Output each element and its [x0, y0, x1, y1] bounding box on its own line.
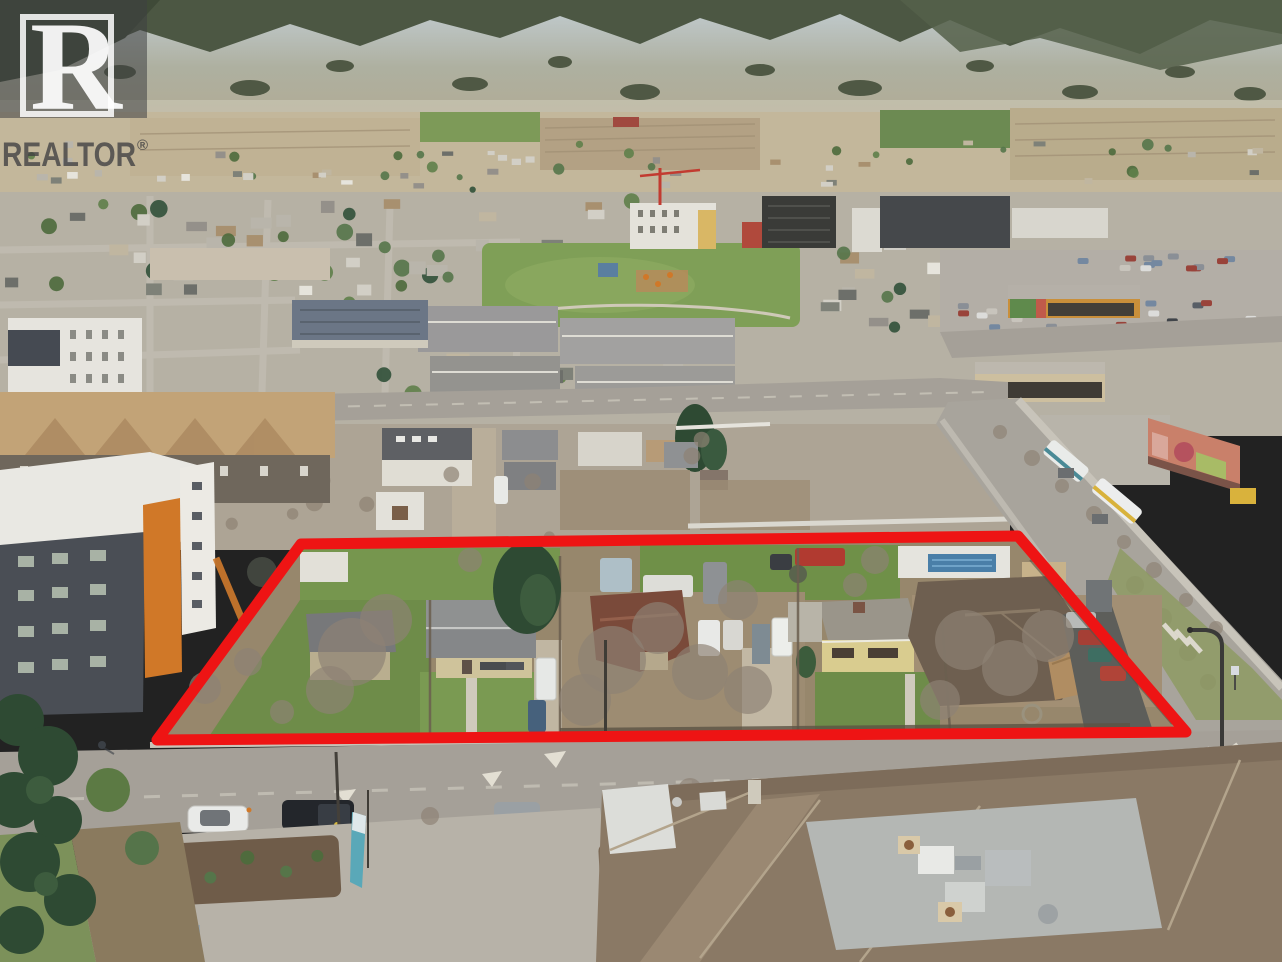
roof-hatch [699, 791, 726, 811]
concrete-path [466, 678, 477, 738]
valley-fields [0, 108, 1282, 198]
tree [553, 163, 564, 174]
house-rooftop [1034, 141, 1046, 146]
tree [889, 321, 900, 332]
tree [377, 367, 392, 382]
chimney [853, 602, 865, 613]
storage-container [752, 624, 770, 664]
tree [443, 467, 459, 483]
white-van [536, 658, 556, 700]
chimney [748, 780, 761, 804]
house-rooftop [855, 269, 875, 279]
house-rooftop [1253, 148, 1264, 154]
house-rooftop [409, 261, 426, 274]
parked-car [958, 303, 969, 309]
house-rooftop [413, 183, 424, 188]
mural-art [1010, 299, 1036, 318]
tree [457, 174, 463, 180]
parked-car [1140, 265, 1151, 271]
garage [788, 602, 822, 642]
evergreen-highlight [520, 574, 556, 626]
house-rooftop [186, 222, 207, 231]
tree [832, 146, 841, 155]
tree [229, 152, 239, 162]
blue-car [528, 700, 546, 732]
parked-car [1078, 258, 1089, 264]
utility-trailer [723, 620, 743, 650]
tree [837, 246, 850, 259]
house-rooftop [910, 310, 930, 319]
tree [624, 148, 634, 158]
dark-commercial-building [880, 196, 1010, 248]
blue-trailer [600, 558, 632, 592]
parked-car [1125, 256, 1136, 262]
house-rooftop [963, 141, 973, 146]
green-field [420, 112, 540, 142]
house-rooftop [215, 152, 225, 159]
house-rooftop [137, 214, 149, 225]
tree [343, 208, 356, 221]
window [832, 648, 854, 658]
leafy-tree [86, 768, 130, 812]
tree [524, 473, 541, 490]
white-commercial-building [1012, 208, 1108, 238]
tree [226, 518, 238, 530]
tree [1109, 148, 1116, 155]
tree [873, 151, 880, 158]
white-suv [188, 806, 248, 832]
house-rooftop [821, 302, 840, 311]
roof-vent [672, 797, 682, 807]
house-rooftop [251, 218, 272, 229]
tree [222, 233, 236, 247]
front-door [462, 660, 472, 674]
tree [427, 162, 438, 173]
house-rooftop [319, 173, 326, 178]
window [868, 648, 898, 658]
parked-car [1120, 265, 1131, 271]
house-rooftop [384, 199, 400, 209]
house-rooftop [1250, 170, 1259, 175]
window [480, 662, 506, 670]
tree [683, 448, 700, 465]
house-rooftop [526, 156, 535, 162]
tree [396, 280, 408, 292]
white-tower [852, 208, 882, 252]
aerial-photo-stage: R REALTOR ® [0, 0, 1282, 962]
playground [636, 270, 688, 292]
house-rooftop [661, 182, 670, 188]
house-rooftop [341, 180, 352, 184]
tree [278, 231, 289, 242]
house-rooftop [1188, 152, 1196, 157]
white-roof-section [602, 784, 676, 854]
tree [470, 186, 476, 192]
red-pickup-truck [795, 548, 845, 566]
white-apartment [8, 318, 142, 402]
house-rooftop [321, 201, 335, 213]
house-rooftop [157, 176, 166, 182]
dirt-yard [560, 470, 690, 530]
dark-car [770, 554, 792, 570]
tree [443, 272, 454, 283]
tree [41, 218, 57, 234]
bus-shelter [1092, 514, 1108, 524]
parked-car [986, 308, 997, 314]
tree [648, 163, 656, 171]
tree [1129, 168, 1139, 178]
tree [432, 250, 445, 263]
realtor-watermark: R REALTOR ® [0, 0, 148, 174]
property-parcel [157, 536, 1186, 742]
tree [150, 200, 168, 218]
tree [417, 151, 425, 159]
logo-letter-r: R [30, 0, 123, 137]
parked-car [977, 312, 988, 318]
parked-car [1168, 254, 1179, 260]
pool-deck [898, 546, 1010, 578]
park-shelter [598, 263, 618, 277]
parked-car [958, 310, 969, 316]
white-shed [300, 552, 348, 582]
solar-panels [8, 330, 60, 366]
tree [379, 241, 391, 253]
tree [694, 432, 710, 448]
tree [380, 171, 389, 180]
tree [393, 151, 402, 160]
house-rooftop [70, 213, 85, 221]
house-rooftop [512, 159, 521, 165]
house-rooftop [247, 235, 263, 246]
tree [894, 283, 906, 295]
transit-shelter [1086, 580, 1112, 612]
house-rooftop [869, 318, 888, 326]
tree [359, 497, 374, 512]
house-rooftop [134, 252, 146, 263]
tree [49, 276, 64, 291]
house-rooftop [243, 173, 253, 180]
tree [1165, 145, 1172, 152]
yellow-equipment [1230, 488, 1256, 504]
tree [1142, 139, 1154, 151]
bus-shelter [1058, 468, 1074, 478]
house-rooftop [838, 290, 856, 300]
house-rooftop [479, 212, 496, 221]
house-rooftop [37, 174, 48, 180]
house-rooftop [826, 165, 833, 170]
house-rooftop [109, 245, 128, 256]
house-rooftop [5, 278, 18, 288]
house-rooftop [51, 177, 62, 183]
house-rooftop [233, 171, 242, 177]
house-rooftop [356, 233, 372, 246]
house-rooftop [770, 160, 780, 165]
house-rooftop [928, 315, 942, 327]
house-rooftop [181, 174, 189, 181]
house-rooftop [488, 151, 495, 155]
utility-pole [604, 640, 607, 740]
house-rooftop [487, 169, 498, 175]
solar-roof-apartment [292, 300, 428, 348]
tree [906, 158, 913, 165]
tree [394, 260, 411, 277]
parked-car [1201, 300, 1212, 306]
swimming-pool [928, 554, 996, 572]
registered-trademark-symbol: ® [137, 137, 148, 154]
tree [287, 508, 298, 519]
house-rooftop [859, 162, 871, 167]
white-shed [376, 492, 424, 530]
storefront-windows [1048, 303, 1134, 316]
tree [576, 141, 583, 148]
house-rooftop [346, 258, 360, 268]
window [506, 662, 524, 670]
house-rooftop [146, 283, 162, 295]
yellow-house [818, 598, 920, 672]
house-rooftop [299, 286, 312, 295]
bare-tree [421, 807, 439, 825]
traffic-cone [247, 808, 252, 813]
flat-roof-section [806, 798, 1162, 950]
leafy-tree [125, 831, 159, 865]
green-field [880, 110, 1010, 148]
house-rooftop [276, 215, 291, 227]
tree [881, 291, 893, 303]
house-rooftop [821, 182, 833, 187]
red-barn-roof [613, 117, 639, 127]
red-building [742, 222, 762, 248]
house-rooftop [442, 151, 453, 155]
orange-accent-wall [143, 498, 182, 678]
tree [1000, 147, 1006, 153]
mural-strip-mall [1008, 285, 1140, 318]
house-rooftop [585, 202, 602, 211]
aerial-photo: R REALTOR ® [0, 0, 1282, 962]
house-rooftop [357, 285, 371, 296]
parked-car [1148, 311, 1159, 317]
house-rooftop [498, 155, 507, 161]
parked-car [1151, 260, 1162, 266]
realtor-wordmark: REALTOR [2, 136, 136, 174]
long-building [150, 248, 330, 280]
dark-tower [762, 196, 836, 248]
house-rooftop [653, 157, 660, 163]
house-rooftop [400, 173, 408, 179]
parked-van [494, 476, 508, 504]
red-car [1100, 666, 1126, 681]
parked-car [1145, 301, 1156, 307]
house-rooftop [1085, 178, 1093, 184]
tree [336, 224, 353, 241]
parked-car [1186, 265, 1197, 271]
house-rooftop [184, 284, 197, 294]
tree [98, 199, 108, 209]
house-rooftop [588, 210, 605, 219]
parked-car [1217, 258, 1228, 264]
